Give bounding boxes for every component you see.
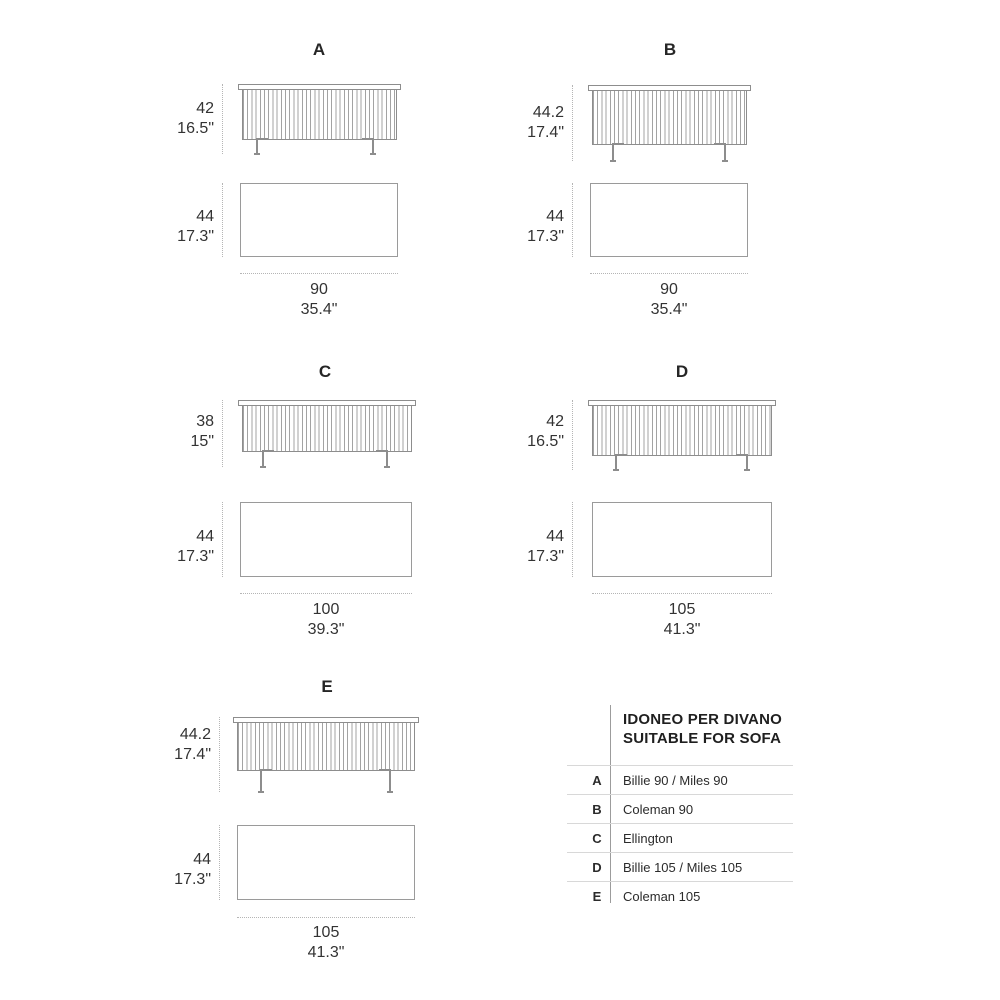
- vertical-dimension-line: [222, 400, 223, 467]
- slatted-front: [242, 405, 412, 452]
- depth-cm: 44: [500, 207, 564, 227]
- width-dimension: 105 41.3": [237, 923, 415, 963]
- panel-c: C 38 15" 44 17.3" 100 39.3": [150, 350, 470, 650]
- panel-b: B 44.2 17.4" 44 17.3" 90 35.4": [500, 30, 820, 330]
- width-cm: 90: [590, 280, 748, 300]
- vertical-dimension-line: [572, 85, 573, 161]
- width-inches: 35.4": [240, 300, 398, 320]
- height-inches: 15": [150, 432, 214, 452]
- leg-left: [262, 450, 274, 467]
- vertical-dimension-line: [572, 183, 573, 257]
- height-inches: 17.4": [500, 123, 564, 143]
- slatted-front: [242, 89, 397, 140]
- front-elevation-drawing: [588, 400, 776, 470]
- plan-view-rectangle: [240, 502, 412, 577]
- width-dimension: 105 41.3": [592, 600, 772, 640]
- front-elevation-drawing: [238, 84, 401, 154]
- leg-left: [256, 138, 268, 154]
- panel-label: B: [664, 40, 676, 60]
- depth-inches: 17.3": [500, 227, 564, 247]
- table-title: IDONEO PER DIVANO SUITABLE FOR SOFA: [623, 710, 782, 748]
- leg-right: [376, 450, 388, 467]
- plan-view-rectangle: [592, 502, 772, 577]
- leg-left: [612, 143, 624, 161]
- row-value: Ellington: [610, 831, 673, 846]
- width-cm: 90: [240, 280, 398, 300]
- slatted-front: [592, 90, 747, 145]
- width-dimension: 90 35.4": [590, 280, 748, 320]
- width-inches: 41.3": [237, 943, 415, 963]
- height-cm: 38: [150, 412, 214, 432]
- row-value: Billie 105 / Miles 105: [610, 860, 742, 875]
- front-height-dimension: 44.2 17.4": [147, 725, 211, 765]
- width-dimension: 100 39.3": [240, 600, 412, 640]
- leg-left: [260, 769, 272, 792]
- row-key: A: [567, 773, 610, 788]
- horizontal-dimension-line: [590, 273, 748, 274]
- front-elevation-drawing: [588, 85, 751, 161]
- table-row: D Billie 105 / Miles 105: [567, 852, 793, 881]
- horizontal-dimension-line: [237, 917, 415, 918]
- depth-inches: 17.3": [500, 547, 564, 567]
- row-value: Coleman 105: [610, 889, 700, 904]
- plan-view-rectangle: [237, 825, 415, 900]
- height-inches: 16.5": [150, 119, 214, 139]
- table-title-italian: IDONEO PER DIVANO: [623, 710, 782, 729]
- width-inches: 39.3": [240, 620, 412, 640]
- width-cm: 105: [237, 923, 415, 943]
- width-cm: 105: [592, 600, 772, 620]
- depth-inches: 17.3": [147, 870, 211, 890]
- depth-dimension: 44 17.3": [150, 207, 214, 247]
- vertical-dimension-line: [219, 717, 220, 792]
- row-value: Coleman 90: [610, 802, 693, 817]
- height-cm: 42: [150, 99, 214, 119]
- vertical-dimension-line: [222, 502, 223, 577]
- depth-dimension: 44 17.3": [500, 527, 564, 567]
- depth-dimension: 44 17.3": [150, 527, 214, 567]
- front-elevation-drawing: [238, 400, 416, 467]
- panel-a: A 42 16.5" 44 17.3" 90 35.4": [150, 30, 470, 330]
- depth-dimension: 44 17.3": [500, 207, 564, 247]
- plan-view-rectangle: [590, 183, 748, 257]
- table-title-english: SUITABLE FOR SOFA: [623, 729, 782, 748]
- front-height-dimension: 38 15": [150, 412, 214, 452]
- row-key: D: [567, 860, 610, 875]
- slatted-front: [237, 722, 415, 771]
- width-inches: 35.4": [590, 300, 748, 320]
- vertical-dimension-line: [219, 825, 220, 900]
- table-row: B Coleman 90: [567, 794, 793, 823]
- depth-cm: 44: [150, 527, 214, 547]
- height-cm: 44.2: [147, 725, 211, 745]
- front-height-dimension: 44.2 17.4": [500, 103, 564, 143]
- depth-cm: 44: [500, 527, 564, 547]
- horizontal-dimension-line: [240, 273, 398, 274]
- table-row: A Billie 90 / Miles 90: [567, 765, 793, 794]
- panel-d: D 42 16.5" 44 17.3" 105 41.3": [500, 350, 820, 650]
- depth-cm: 44: [147, 850, 211, 870]
- panel-e: E 44.2 17.4" 44 17.3" 105 41.3": [147, 675, 467, 985]
- leg-right: [736, 454, 748, 470]
- vertical-dimension-line: [222, 183, 223, 257]
- leg-right: [362, 138, 374, 154]
- front-height-dimension: 42 16.5": [150, 99, 214, 139]
- horizontal-dimension-line: [240, 593, 412, 594]
- height-cm: 44.2: [500, 103, 564, 123]
- width-dimension: 90 35.4": [240, 280, 398, 320]
- horizontal-dimension-line: [592, 593, 772, 594]
- sofa-compatibility-table: IDONEO PER DIVANO SUITABLE FOR SOFA A Bi…: [567, 700, 793, 912]
- panel-label: C: [319, 362, 331, 382]
- vertical-dimension-line: [572, 400, 573, 470]
- plan-view-rectangle: [240, 183, 398, 257]
- leg-left: [615, 454, 627, 470]
- depth-inches: 17.3": [150, 547, 214, 567]
- table-rows: A Billie 90 / Miles 90 B Coleman 90 C El…: [567, 765, 793, 910]
- height-inches: 17.4": [147, 745, 211, 765]
- panel-label: D: [676, 362, 688, 382]
- row-key: C: [567, 831, 610, 846]
- row-value: Billie 90 / Miles 90: [610, 773, 728, 788]
- slatted-front: [592, 405, 772, 456]
- table-row: C Ellington: [567, 823, 793, 852]
- width-cm: 100: [240, 600, 412, 620]
- depth-inches: 17.3": [150, 227, 214, 247]
- width-inches: 41.3": [592, 620, 772, 640]
- row-key: E: [567, 889, 610, 904]
- vertical-dimension-line: [222, 84, 223, 154]
- height-inches: 16.5": [500, 432, 564, 452]
- panel-label: E: [321, 677, 332, 697]
- leg-right: [714, 143, 726, 161]
- height-cm: 42: [500, 412, 564, 432]
- row-key: B: [567, 802, 610, 817]
- leg-right: [379, 769, 391, 792]
- panel-label: A: [313, 40, 325, 60]
- dimension-sheet: A 42 16.5" 44 17.3" 90 35.4" B 44.2 17.4…: [0, 0, 1000, 1000]
- depth-dimension: 44 17.3": [147, 850, 211, 890]
- vertical-dimension-line: [572, 502, 573, 577]
- front-height-dimension: 42 16.5": [500, 412, 564, 452]
- table-row: E Coleman 105: [567, 881, 793, 910]
- depth-cm: 44: [150, 207, 214, 227]
- front-elevation-drawing: [233, 717, 419, 792]
